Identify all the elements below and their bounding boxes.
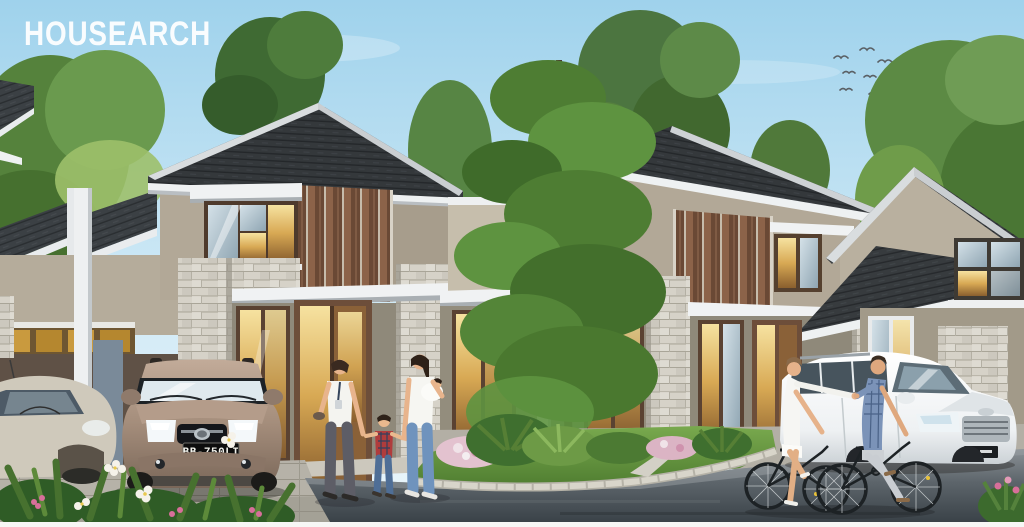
property-listing-image: BB-750LI — [0, 0, 1024, 527]
scene: BB-750LI — [0, 0, 1024, 527]
brand-watermark: HOUSEARCH — [24, 17, 211, 51]
brown-suv: BB-750LI — [114, 358, 286, 502]
bottom-border — [0, 522, 1024, 527]
